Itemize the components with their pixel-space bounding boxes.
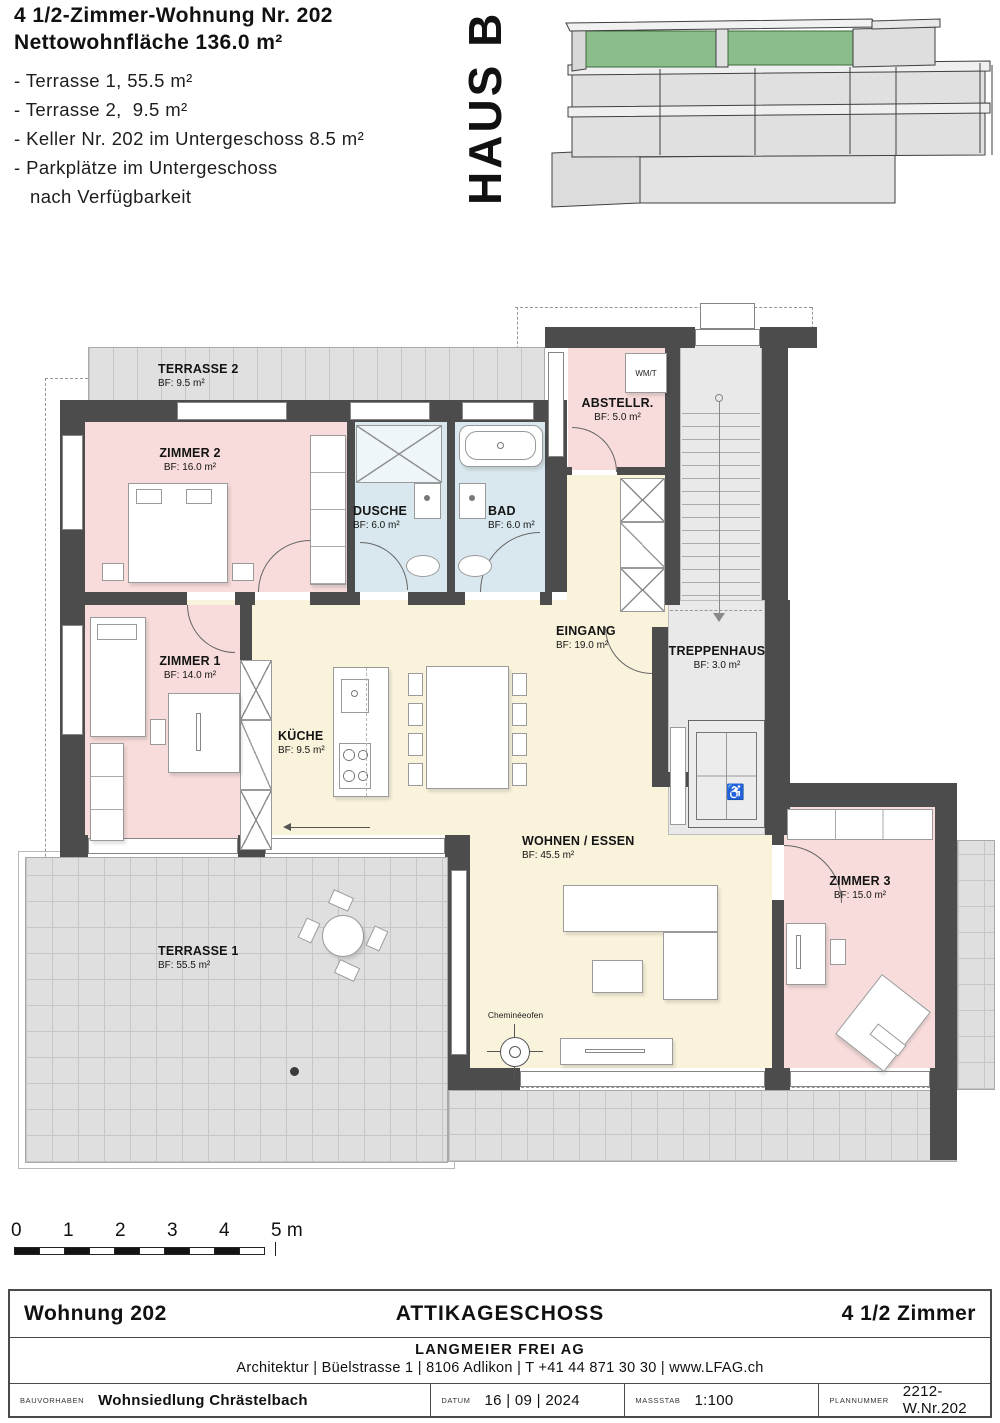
room-label-abstellraum: ABSTELLR. BF: 5.0 m² bbox=[555, 395, 680, 424]
roof-dashed-line bbox=[812, 307, 813, 329]
pillow bbox=[186, 489, 212, 504]
shower bbox=[356, 425, 442, 483]
wall bbox=[310, 592, 360, 605]
stair-down-arrow bbox=[713, 613, 725, 622]
room-name: BAD bbox=[488, 503, 548, 519]
scale-segment bbox=[114, 1247, 140, 1255]
feature-item: - Keller Nr. 202 im Untergeschoss 8.5 m² bbox=[14, 124, 474, 153]
project-label: BAUVORHABEN bbox=[20, 1396, 84, 1405]
room-area: BF: 3.0 m² bbox=[662, 659, 772, 672]
elevator-cab bbox=[696, 732, 757, 820]
scale-segment bbox=[239, 1247, 265, 1255]
wardrobe-cabinet bbox=[620, 522, 665, 568]
plannr-value: 2212-W.Nr.202 bbox=[903, 1383, 980, 1417]
title-block-row3: BAUVORHABEN Wohnsiedlung Chrästelbach DA… bbox=[10, 1384, 990, 1416]
sink-dot bbox=[469, 495, 475, 501]
wall bbox=[930, 1068, 957, 1090]
pillow bbox=[97, 624, 137, 640]
cheminee-stove-inner bbox=[509, 1046, 521, 1058]
feature-item: - Terrasse 2, 9.5 m² bbox=[14, 95, 474, 124]
wall bbox=[540, 592, 552, 605]
feature-item-continuation: nach Verfügbarkeit bbox=[14, 182, 474, 211]
wall bbox=[665, 345, 680, 605]
stair-start-dot bbox=[715, 394, 723, 402]
scale-cell: MASSSTAB 1:100 bbox=[625, 1384, 819, 1416]
building-sketch bbox=[540, 5, 995, 210]
coffee-table bbox=[592, 960, 643, 993]
room-name: WOHNEN / ESSEN bbox=[522, 833, 672, 849]
window bbox=[790, 1071, 930, 1087]
elevator-shaft-door bbox=[670, 727, 686, 825]
room-name: ZIMMER 1 bbox=[115, 653, 265, 669]
wheelchair-icon: ♿ bbox=[726, 783, 745, 801]
scale-segment bbox=[164, 1247, 190, 1255]
wall bbox=[448, 1068, 520, 1090]
scale-number: 2 bbox=[115, 1220, 149, 1242]
scale-number: 0 bbox=[11, 1220, 45, 1242]
architect-block: LANGMEIER FREI AG Architektur | Büelstra… bbox=[10, 1338, 990, 1384]
project-cell: BAUVORHABEN Wohnsiedlung Chrästelbach bbox=[10, 1384, 431, 1416]
sofa bbox=[663, 932, 718, 1000]
room-label-zimmer3: ZIMMER 3 BF: 15.0 m² bbox=[800, 873, 920, 902]
stair-centerline bbox=[719, 398, 720, 613]
roof-dashed-line bbox=[45, 378, 88, 379]
sink-dot bbox=[424, 495, 430, 501]
room-area: BF: 45.5 m² bbox=[522, 849, 672, 862]
plan-title-line1: 4 1/2-Zimmer-Wohnung Nr. 202 bbox=[14, 2, 474, 29]
scale-number: 4 bbox=[219, 1220, 253, 1242]
header-block: 4 1/2-Zimmer-Wohnung Nr. 202 Nettowohnfl… bbox=[14, 2, 474, 211]
room-label-dusche: DUSCHE BF: 6.0 m² bbox=[353, 503, 443, 532]
bathtub-tap bbox=[497, 442, 504, 449]
wall bbox=[565, 467, 572, 475]
feature-item: - Terrasse 1, 55.5 m² bbox=[14, 66, 474, 95]
room-label-bad: BAD BF: 6.0 m² bbox=[488, 503, 548, 532]
sofa bbox=[563, 885, 718, 932]
scale-segment bbox=[64, 1247, 90, 1255]
wall bbox=[85, 592, 187, 605]
monitor bbox=[796, 935, 801, 969]
date-label: DATUM bbox=[441, 1396, 470, 1405]
scale-segment bbox=[39, 1247, 65, 1255]
haus-label: HAUS B bbox=[458, 0, 512, 205]
room-name: TERRASSE 1 bbox=[158, 943, 298, 959]
scale-number: 5 m bbox=[271, 1220, 305, 1242]
pillow bbox=[136, 489, 162, 504]
toilet bbox=[406, 555, 440, 577]
scale-number: 1 bbox=[63, 1220, 97, 1242]
window bbox=[350, 402, 430, 420]
window bbox=[177, 402, 287, 420]
slide-arrow-head bbox=[283, 823, 291, 831]
sink bbox=[459, 483, 486, 519]
room-terrasse1 bbox=[25, 857, 448, 1163]
wall bbox=[762, 345, 788, 600]
wall bbox=[930, 1090, 957, 1160]
plan-title-line2: Nettowohnfläche 136.0 m² bbox=[14, 29, 474, 56]
chair bbox=[512, 703, 527, 726]
attic-highlight bbox=[586, 31, 716, 67]
scale-segment bbox=[89, 1247, 115, 1255]
monitor bbox=[196, 713, 201, 751]
wall bbox=[235, 592, 255, 605]
nightstand bbox=[102, 563, 124, 581]
room-label-zimmer2: ZIMMER 2 BF: 16.0 m² bbox=[120, 445, 260, 474]
desk-chair bbox=[150, 719, 166, 745]
wall bbox=[617, 467, 680, 475]
title-block-row1: Wohnung 202 ATTIKAGESCHOSS 4 1/2 Zimmer bbox=[10, 1291, 990, 1338]
kitchen-tall-cabinet bbox=[240, 720, 272, 790]
stair-steps bbox=[682, 413, 760, 608]
sliding-door bbox=[520, 1071, 765, 1087]
date-value: 16 | 09 | 2024 bbox=[485, 1392, 580, 1409]
nightstand bbox=[232, 563, 254, 581]
wall bbox=[935, 783, 957, 1068]
chair bbox=[512, 733, 527, 756]
chair bbox=[512, 673, 527, 696]
room-area: BF: 6.0 m² bbox=[488, 519, 548, 532]
wardrobe bbox=[310, 435, 346, 585]
roof-dashed-line bbox=[515, 307, 812, 308]
scale-segment bbox=[189, 1247, 215, 1255]
room-area: BF: 14.0 m² bbox=[115, 669, 265, 682]
wall bbox=[772, 900, 784, 1068]
room-terrasse-side bbox=[957, 840, 995, 1090]
washer-dryer: WM/T bbox=[625, 353, 667, 393]
room-name: TREPPENHAUS bbox=[662, 643, 772, 659]
scale-segment bbox=[214, 1247, 240, 1255]
room-terrasse2 bbox=[88, 347, 545, 402]
chair bbox=[408, 673, 423, 696]
room-label-terrasse1: TERRASSE 1 BF: 55.5 m² bbox=[158, 943, 298, 972]
window bbox=[451, 870, 467, 1055]
wall bbox=[772, 783, 957, 807]
dining-table bbox=[426, 666, 509, 789]
roof-dashed-line bbox=[517, 307, 518, 349]
toilet bbox=[458, 555, 492, 577]
kitchen-tall-cabinet bbox=[240, 790, 272, 850]
scale-segment bbox=[139, 1247, 165, 1255]
entry-stoop bbox=[700, 303, 755, 329]
sliding-door bbox=[265, 838, 445, 854]
room-area: BF: 6.0 m² bbox=[353, 519, 443, 532]
plannr-cell: PLANNUMMER 2212-W.Nr.202 bbox=[819, 1384, 990, 1416]
wardrobe-cabinet bbox=[620, 568, 665, 612]
scale-end-tick bbox=[275, 1242, 276, 1256]
room-name: ABSTELLR. bbox=[555, 395, 680, 411]
room-label-zimmer1: ZIMMER 1 BF: 14.0 m² bbox=[115, 653, 265, 682]
stair-level-line bbox=[670, 610, 762, 611]
chair bbox=[408, 703, 423, 726]
wall bbox=[60, 835, 88, 857]
scale-bar-segments bbox=[15, 1247, 277, 1255]
built-in-wardrobe bbox=[787, 809, 933, 840]
wardrobe-cabinet bbox=[620, 478, 665, 522]
room-terrasse1-strip bbox=[448, 1090, 957, 1162]
wall bbox=[765, 600, 790, 835]
rooms-title: 4 1/2 Zimmer bbox=[659, 1302, 976, 1326]
room-area: BF: 55.5 m² bbox=[158, 959, 298, 972]
room-label-terrasse2: TERRASSE 2 BF: 9.5 m² bbox=[158, 361, 298, 390]
room-name: TERRASSE 2 bbox=[158, 361, 298, 377]
chair bbox=[512, 763, 527, 786]
company-name: LANGMEIER FREI AG bbox=[10, 1342, 990, 1358]
room-area: BF: 16.0 m² bbox=[120, 461, 260, 474]
project-value: Wohnsiedlung Chrästelbach bbox=[98, 1392, 308, 1409]
room-label-kueche: KÜCHE BF: 9.5 m² bbox=[278, 728, 368, 757]
terrace-drain bbox=[290, 1067, 299, 1076]
room-label-treppenhaus: TREPPENHAUS BF: 3.0 m² bbox=[662, 643, 772, 672]
room-area: BF: 19.0 m² bbox=[556, 639, 666, 652]
chair bbox=[408, 763, 423, 786]
room-living-area bbox=[470, 835, 772, 1068]
desk-chair bbox=[830, 939, 846, 965]
cheminee-label: Cheminéeofen bbox=[468, 1010, 563, 1020]
title-block: Wohnung 202 ATTIKAGESCHOSS 4 1/2 Zimmer … bbox=[8, 1289, 992, 1418]
desk bbox=[168, 693, 240, 773]
room-area: BF: 15.0 m² bbox=[800, 889, 920, 902]
room-area: BF: 9.5 m² bbox=[158, 377, 298, 390]
room-name: ZIMMER 3 bbox=[800, 873, 920, 889]
date-cell: DATUM 16 | 09 | 2024 bbox=[431, 1384, 625, 1416]
scale-bar: 0 1 2 3 4 5 m bbox=[15, 1220, 335, 1262]
wall bbox=[408, 592, 465, 605]
wall bbox=[240, 605, 252, 660]
room-label-wohnen: WOHNEN / ESSEN BF: 45.5 m² bbox=[522, 833, 672, 862]
kitchen-faucet bbox=[351, 690, 358, 697]
scale-number: 3 bbox=[167, 1220, 201, 1242]
window bbox=[462, 402, 534, 420]
room-area: BF: 9.5 m² bbox=[278, 744, 368, 757]
scale-value: 1:100 bbox=[695, 1392, 734, 1409]
feature-list: - Terrasse 1, 55.5 m² - Terrasse 2, 9.5 … bbox=[14, 66, 474, 211]
terrace-table bbox=[322, 915, 364, 957]
room-area: BF: 5.0 m² bbox=[555, 411, 680, 424]
apartment-title: Wohnung 202 bbox=[24, 1302, 341, 1326]
chair bbox=[408, 733, 423, 756]
wardrobe bbox=[90, 743, 124, 841]
window bbox=[62, 625, 83, 735]
room-name: KÜCHE bbox=[278, 728, 368, 744]
scale-segment bbox=[14, 1247, 40, 1255]
slide-direction-arrow bbox=[290, 827, 370, 828]
room-name: ZIMMER 2 bbox=[120, 445, 260, 461]
feature-item: - Parkplätze im Untergeschoss bbox=[14, 153, 474, 182]
desk bbox=[786, 923, 826, 985]
tv bbox=[585, 1049, 645, 1053]
company-address: Architektur | Büelstrasse 1 | 8106 Adlik… bbox=[10, 1360, 990, 1376]
window bbox=[62, 435, 83, 530]
room-label-eingang: EINGANG BF: 19.0 m² bbox=[556, 623, 666, 652]
entry-door bbox=[695, 329, 760, 346]
floor-title: ATTIKAGESCHOSS bbox=[341, 1302, 658, 1326]
wall bbox=[447, 422, 455, 592]
plannr-label: PLANNUMMER bbox=[829, 1396, 888, 1405]
room-name: DUSCHE bbox=[353, 503, 443, 519]
washer-dryer-label: WM/T bbox=[635, 369, 656, 378]
wall bbox=[765, 1068, 790, 1090]
scale-label: MASSSTAB bbox=[635, 1396, 680, 1405]
floor-plan: ♿ Cheminéeofen WM bbox=[0, 295, 1000, 1175]
room-name: EINGANG bbox=[556, 623, 666, 639]
